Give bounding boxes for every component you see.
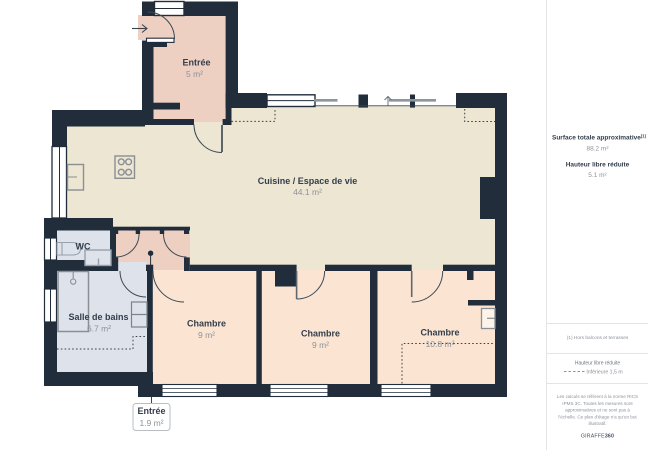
svg-text:(1) Hors balcons et terrasses: (1) Hors balcons et terrasses: [567, 335, 629, 341]
svg-text:44.1 m²: 44.1 m²: [293, 187, 322, 197]
svg-text:Entrée: Entrée: [182, 57, 210, 67]
svg-text:9 m²: 9 m²: [198, 330, 215, 340]
svg-text:6.7 m²: 6.7 m²: [87, 324, 111, 334]
svg-text:9 m²: 9 m²: [312, 340, 329, 350]
svg-text:1.9 m²: 1.9 m²: [139, 418, 163, 428]
svg-text:l'échelle. Ce plan d'étage n'a: l'échelle. Ce plan d'étage n'a qu'un but: [558, 414, 637, 419]
svg-text:Entrée: Entrée: [137, 406, 165, 416]
svg-text:Salle de bains: Salle de bains: [68, 312, 128, 322]
svg-text:Chambre: Chambre: [301, 329, 340, 339]
svg-text:Hauteur libre réduite: Hauteur libre réduite: [575, 360, 621, 366]
svg-text:IPMS 3C. Toutes les mesures so: IPMS 3C. Toutes les mesures sont: [562, 401, 633, 406]
svg-text:Cuisine / Espace de vie: Cuisine / Espace de vie: [258, 176, 358, 186]
svg-text:Surface totale approximative(1: Surface totale approximative(1): [552, 134, 647, 142]
svg-text:illustratif.: illustratif.: [588, 421, 606, 426]
svg-text:WC: WC: [76, 242, 91, 252]
svg-text:Hauteur libre réduite: Hauteur libre réduite: [566, 162, 630, 169]
svg-text:Les calculs se réfèrent à la n: Les calculs se réfèrent à la norme RICS: [557, 394, 638, 399]
svg-text:5.1 m²: 5.1 m²: [588, 172, 607, 179]
svg-text:approximatives et ne sont pas: approximatives et ne sont pas à: [565, 408, 630, 413]
svg-text:Chambre: Chambre: [420, 328, 459, 338]
svg-text:Inférieure 1,5 m: Inférieure 1,5 m: [586, 369, 622, 375]
svg-text:Chambre: Chambre: [187, 319, 226, 329]
svg-text:5 m²: 5 m²: [186, 69, 203, 79]
svg-text:88.2 m²: 88.2 m²: [586, 146, 609, 153]
svg-text:10.8 m²: 10.8 m²: [426, 339, 455, 349]
svg-text:GIRAFFE360: GIRAFFE360: [581, 434, 614, 440]
